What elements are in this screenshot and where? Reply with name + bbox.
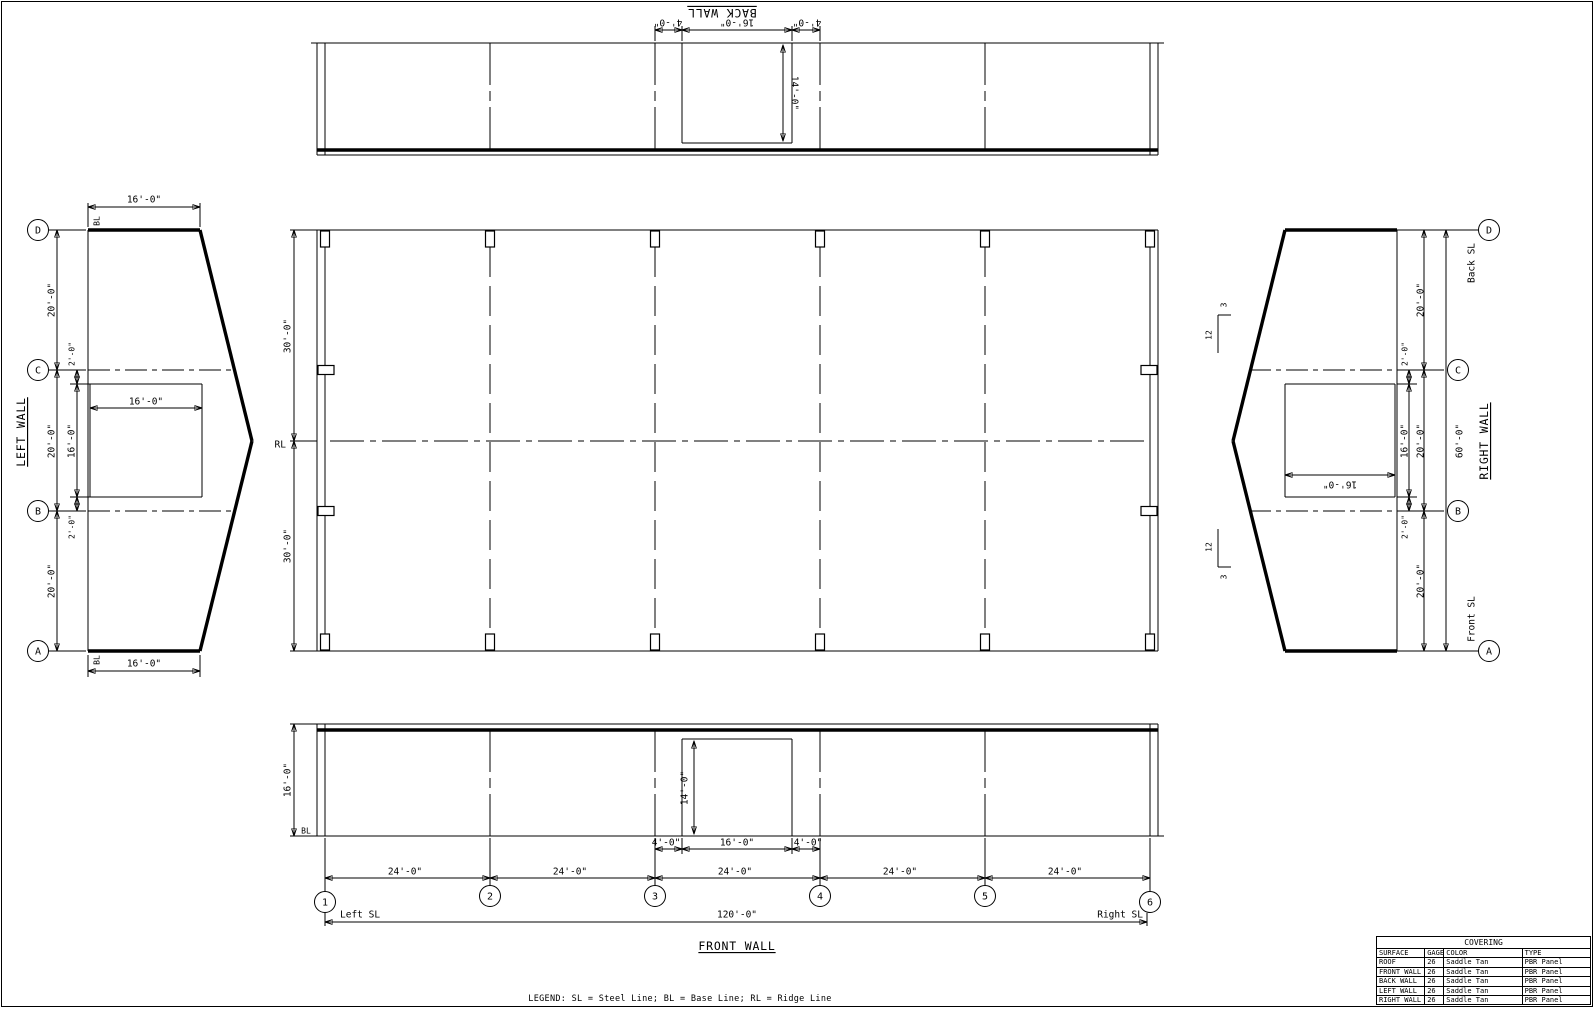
dim-label: 16'-0" <box>127 659 161 670</box>
grid-bubble-label: D <box>1486 226 1492 237</box>
left-wall-title: LEFT WALL <box>14 397 28 467</box>
type-cell: PBR Panel <box>1522 986 1590 995</box>
sheet-border <box>2 2 1593 1007</box>
dim-label: 24'-0" <box>388 867 422 878</box>
covering-col-header: TYPE <box>1522 949 1590 958</box>
table-row: RIGHT WALL 26 Saddle Tan PBR Panel <box>1377 995 1591 1004</box>
grid-bubble-label: A <box>35 647 41 658</box>
table-row: FRONT WALL 26 Saddle Tan PBR Panel <box>1377 967 1591 976</box>
grid-bubble-label: 1 <box>322 898 328 909</box>
grid-bubble-label: 5 <box>982 892 988 903</box>
gage-cell: 26 <box>1425 995 1444 1004</box>
dim-label: 24'-0" <box>718 867 752 878</box>
dim-label: 4'-0" <box>654 17 683 28</box>
table-row: BACK WALL 26 Saddle Tan PBR Panel <box>1377 977 1591 986</box>
covering-table-title: COVERING <box>1377 937 1591 949</box>
grid-bubble-label: C <box>1455 366 1461 377</box>
covering-col-header: COLOR <box>1444 949 1522 958</box>
base-line-label: BL <box>93 216 102 226</box>
covering-col-header: SURFACE <box>1377 949 1425 958</box>
dim-label: 2'-0" <box>68 342 77 366</box>
dim-label: 4'-0" <box>652 838 681 849</box>
table-row: LEFT WALL 26 Saddle Tan PBR Panel <box>1377 986 1591 995</box>
dim-label: 30'-0" <box>283 319 294 353</box>
dim-label: 30'-0" <box>283 529 294 563</box>
right-wall-elevation: 16'-0" 12 3 12 3 2'-0" 16'-0" 2'-0" <box>1205 220 1500 662</box>
pitch-run-label: 12 <box>1205 330 1214 340</box>
back-wall-dimensions: 4'-0" 16'-0" 4'-0" 14'-0" <box>654 17 822 142</box>
surface-cell: RIGHT WALL <box>1377 995 1425 1004</box>
surface-cell: ROOF <box>1377 958 1425 967</box>
front-wall-elevation: 14'-0" 16'-0" BL 4'-0" 16'-0" 4'-0" <box>283 724 1165 953</box>
color-cell: Saddle Tan <box>1444 977 1522 986</box>
dim-label: 24'-0" <box>553 867 587 878</box>
gage-cell: 26 <box>1425 958 1444 967</box>
dim-label: 16'-0" <box>1400 424 1411 458</box>
dim-label: 2'-0" <box>1401 342 1410 366</box>
dim-label: 2'-0" <box>1401 515 1410 539</box>
dim-label: 16'-0" <box>67 424 78 458</box>
dim-label: 14'-0" <box>789 76 800 110</box>
grid-bubble-label: C <box>35 366 41 377</box>
grid-bubble-label: 3 <box>652 892 658 903</box>
back-wall-elevation: 4'-0" 16'-0" 4'-0" 14'-0" BACK WALL <box>311 6 1164 155</box>
dim-label: 20'-0" <box>47 564 58 598</box>
steel-line-label: Left SL <box>340 910 380 921</box>
back-wall-grid-lines <box>490 43 985 150</box>
surface-cell: FRONT WALL <box>1377 967 1425 976</box>
right-wall-framed-opening: 16'-0" <box>1285 384 1395 497</box>
left-wall-grid-bubbles: D C B A <box>28 220 49 662</box>
surface-cell: LEFT WALL <box>1377 986 1425 995</box>
dim-label: 20'-0" <box>47 283 58 317</box>
gage-cell: 26 <box>1425 967 1444 976</box>
right-wall-pitch-symbols: 12 3 12 3 <box>1205 302 1232 579</box>
gage-cell: 26 <box>1425 986 1444 995</box>
dim-label: 24'-0" <box>1048 867 1082 878</box>
grid-bubble-label: A <box>1486 647 1492 658</box>
base-line-label: BL <box>301 827 311 836</box>
front-wall-grid-bubbles: 1 2 3 4 5 6 <box>315 886 1161 913</box>
dim-label: 20'-0" <box>1416 283 1427 317</box>
drawing-sheet: 4'-0" 16'-0" 4'-0" 14'-0" BACK WALL <box>0 0 1595 1011</box>
grid-bubble-label: 2 <box>487 892 493 903</box>
left-wall-framed-opening: 16'-0" <box>90 384 202 497</box>
table-row: ROOF 26 Saddle Tan PBR Panel <box>1377 958 1591 967</box>
gage-cell: 26 <box>1425 977 1444 986</box>
color-cell: Saddle Tan <box>1444 958 1522 967</box>
covering-col-header: GAGE <box>1425 949 1444 958</box>
dim-label: 16'-0" <box>283 763 294 797</box>
plan-dimensions: 30'-0" RL 30'-0" <box>275 230 317 651</box>
dim-label: 4'-0" <box>794 838 823 849</box>
steel-line-label: Back SL <box>1467 243 1478 283</box>
dim-label: 60'-0" <box>1455 424 1466 458</box>
grid-bubble-label: D <box>35 226 41 237</box>
erection-drawing: 4'-0" 16'-0" 4'-0" 14'-0" BACK WALL <box>0 0 1595 1011</box>
type-cell: PBR Panel <box>1522 958 1590 967</box>
dim-label: 16'-0" <box>720 838 754 849</box>
front-wall-dimensions: 16'-0" BL 4'-0" 16'-0" 4'-0" 24'-0" 24 <box>283 724 1151 926</box>
pitch-rise-label: 3 <box>1220 574 1229 579</box>
grid-bubble-label: 6 <box>1147 898 1153 909</box>
color-cell: Saddle Tan <box>1444 986 1522 995</box>
grid-bubble-label: 4 <box>817 892 823 903</box>
grid-bubble-label: B <box>1455 507 1461 518</box>
pitch-rise-label: 3 <box>1220 302 1229 307</box>
grid-bubble-label: B <box>35 507 41 518</box>
surface-cell: BACK WALL <box>1377 977 1425 986</box>
dim-label: 2'-0" <box>68 515 77 539</box>
legend-text: LEGEND: SL = Steel Line; BL = Base Line;… <box>528 994 831 1004</box>
type-cell: PBR Panel <box>1522 995 1590 1004</box>
steel-line-label: Front SL <box>1467 596 1478 642</box>
dim-label: 20'-0" <box>1416 424 1427 458</box>
front-wall-grid-lines <box>490 730 985 836</box>
covering-table: COVERING SURFACE GAGE COLOR TYPE ROOF 26… <box>1376 936 1591 1005</box>
steel-line-label: Right SL <box>1097 910 1143 921</box>
back-wall-framed-opening <box>682 43 792 143</box>
roof-plan-view: 30'-0" RL 30'-0" <box>275 230 1158 651</box>
dim-label: 4'-0" <box>793 17 822 28</box>
color-cell: Saddle Tan <box>1444 995 1522 1004</box>
pitch-run-label: 12 <box>1205 542 1214 552</box>
dim-label: 20'-0" <box>47 424 58 458</box>
right-wall-dimensions: 2'-0" 16'-0" 2'-0" 20'-0" 20'-0" 20'-0" … <box>1397 230 1478 651</box>
dim-label: 24'-0" <box>883 867 917 878</box>
dim-label: 16'-0" <box>129 397 163 408</box>
type-cell: PBR Panel <box>1522 967 1590 976</box>
color-cell: Saddle Tan <box>1444 967 1522 976</box>
front-wall-title: FRONT WALL <box>698 939 775 953</box>
dim-label: 16'-0" <box>1323 479 1357 490</box>
left-wall-elevation: 16'-0" 16'-0" BL 16'-0" BL 20'-0" 20'-0"… <box>14 195 252 678</box>
left-wall-dimensions: 16'-0" BL 16'-0" BL 20'-0" 20'-0" 20'-0"… <box>47 195 201 678</box>
dim-label: 14'-0" <box>680 771 691 805</box>
right-wall-title: RIGHT WALL <box>1477 402 1491 479</box>
type-cell: PBR Panel <box>1522 977 1590 986</box>
dim-label: 20'-0" <box>1416 564 1427 598</box>
dim-label: 120'-0" <box>717 910 757 921</box>
front-wall-framed-opening: 14'-0" <box>680 739 793 836</box>
ridge-label: RL <box>275 440 287 451</box>
back-wall-title: BACK WALL <box>687 6 757 20</box>
base-line-label: BL <box>93 655 102 665</box>
dim-label: 16'-0" <box>127 195 161 206</box>
